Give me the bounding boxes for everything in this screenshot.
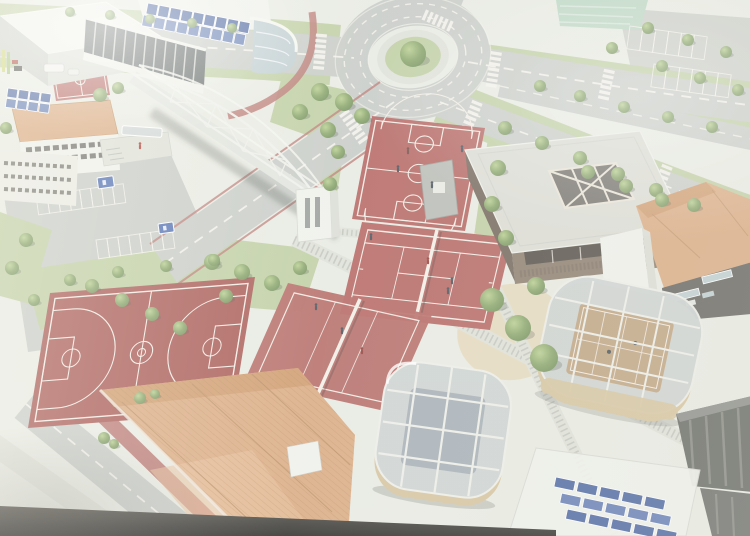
- person-figure: [397, 165, 400, 172]
- solar-panel: [169, 7, 181, 20]
- person-figure: [431, 181, 434, 188]
- solar-panel: [5, 98, 16, 108]
- person-figure: [315, 303, 318, 310]
- solar-panel: [238, 21, 250, 34]
- person-figure: [461, 145, 464, 152]
- solar-panel: [39, 103, 50, 113]
- entry-wall-opening: [433, 182, 445, 193]
- person-figure: [407, 147, 410, 154]
- solar-panel: [40, 93, 51, 103]
- person-figure: [139, 142, 142, 149]
- photo-of-architectural-render: [0, 0, 750, 536]
- blue-pavement-sign: [97, 176, 114, 189]
- person-figure: [370, 233, 373, 240]
- solar-panel: [16, 100, 27, 110]
- person-figure: [341, 327, 344, 334]
- solar-panel: [210, 28, 222, 41]
- person-figure: [361, 347, 364, 354]
- classroom-building-2: [0, 150, 78, 206]
- solar-panel: [29, 91, 40, 101]
- dark-sign: [14, 66, 22, 71]
- campus-render-scene: [0, 0, 750, 536]
- solar-panel: [233, 33, 245, 46]
- blue-pavement-sign: [158, 222, 174, 234]
- person-figure: [451, 277, 454, 284]
- solar-panel: [7, 88, 18, 98]
- minibus: [44, 64, 64, 72]
- person-figure: [447, 287, 450, 294]
- person-figure: [427, 257, 430, 264]
- glass-pavilion-bottom: [369, 358, 515, 514]
- solar-panel: [27, 101, 38, 111]
- solar-panel: [165, 19, 177, 32]
- solar-panel: [146, 3, 158, 16]
- solar-panel: [199, 26, 211, 39]
- solar-panel: [176, 22, 188, 35]
- tower-glazing: [305, 198, 310, 228]
- solar-panel: [203, 14, 215, 27]
- solar-panel: [157, 5, 169, 18]
- tower-glazing: [315, 197, 320, 227]
- solar-panel: [215, 16, 227, 29]
- banner: [7, 52, 10, 74]
- car: [68, 69, 79, 75]
- solar-panel: [18, 90, 29, 100]
- stair-tower: [296, 186, 332, 242]
- red-sign: [12, 60, 18, 64]
- banner: [2, 50, 5, 72]
